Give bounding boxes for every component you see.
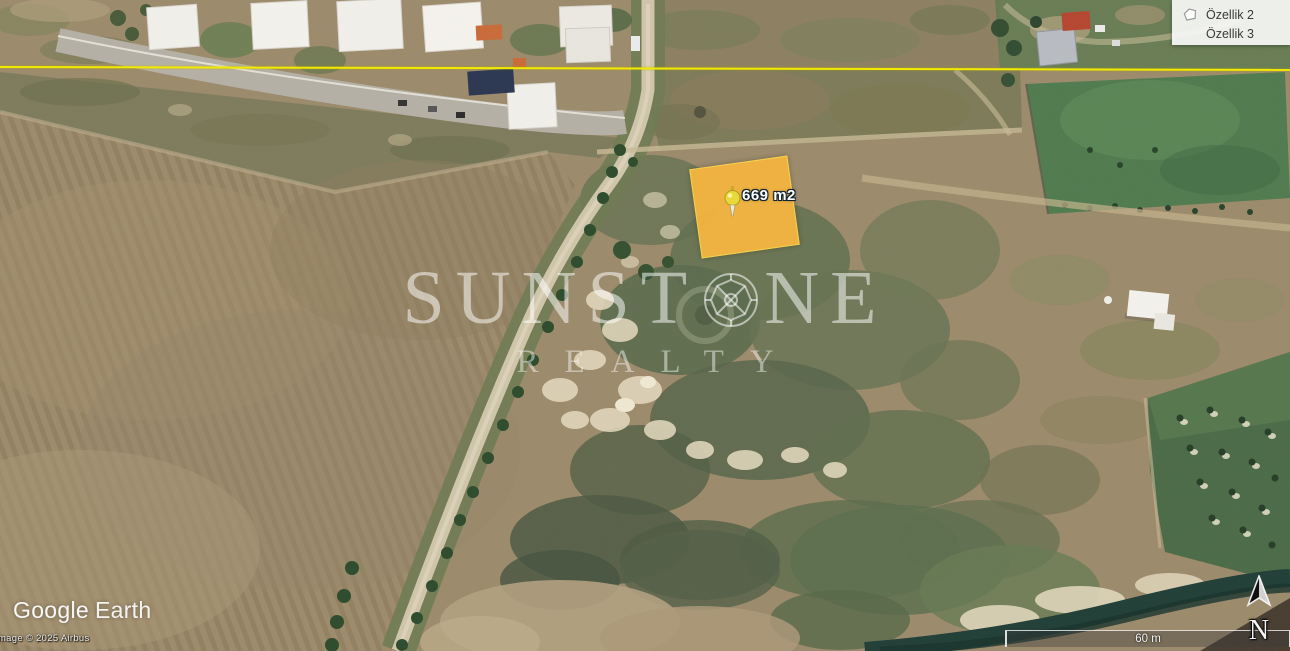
google-earth-map-viewport[interactable]: 669 m2 SUNST NE REALTY bbox=[0, 0, 1290, 651]
legend-item-label: Özellik 2 bbox=[1206, 8, 1254, 22]
north-arrow-icon bbox=[1241, 575, 1277, 609]
legend-item-label: Özellik 3 bbox=[1206, 27, 1254, 41]
legend-panel: Özellik 2 Özellik 3 bbox=[1172, 0, 1290, 45]
imagery-copyright: Image © 2025 Airbus bbox=[0, 633, 90, 644]
texture-overlay bbox=[0, 0, 1290, 651]
polygon-icon bbox=[1183, 8, 1198, 21]
legend-item-ozellik-2[interactable]: Özellik 2 bbox=[1183, 6, 1290, 23]
legend-item-ozellik-3[interactable]: Özellik 3 bbox=[1183, 25, 1290, 42]
scale-label: 60 m bbox=[1135, 633, 1161, 645]
parcel-area-label: 669 m2 bbox=[742, 187, 796, 204]
google-earth-logo: GoogleEarth bbox=[13, 597, 151, 624]
yellow-pushpin-icon[interactable] bbox=[724, 186, 741, 218]
parcel-annotation: 669 m2 bbox=[724, 186, 796, 218]
satellite-imagery bbox=[0, 0, 1290, 651]
north-label: N bbox=[1241, 616, 1277, 646]
north-indicator[interactable]: N bbox=[1241, 575, 1277, 646]
